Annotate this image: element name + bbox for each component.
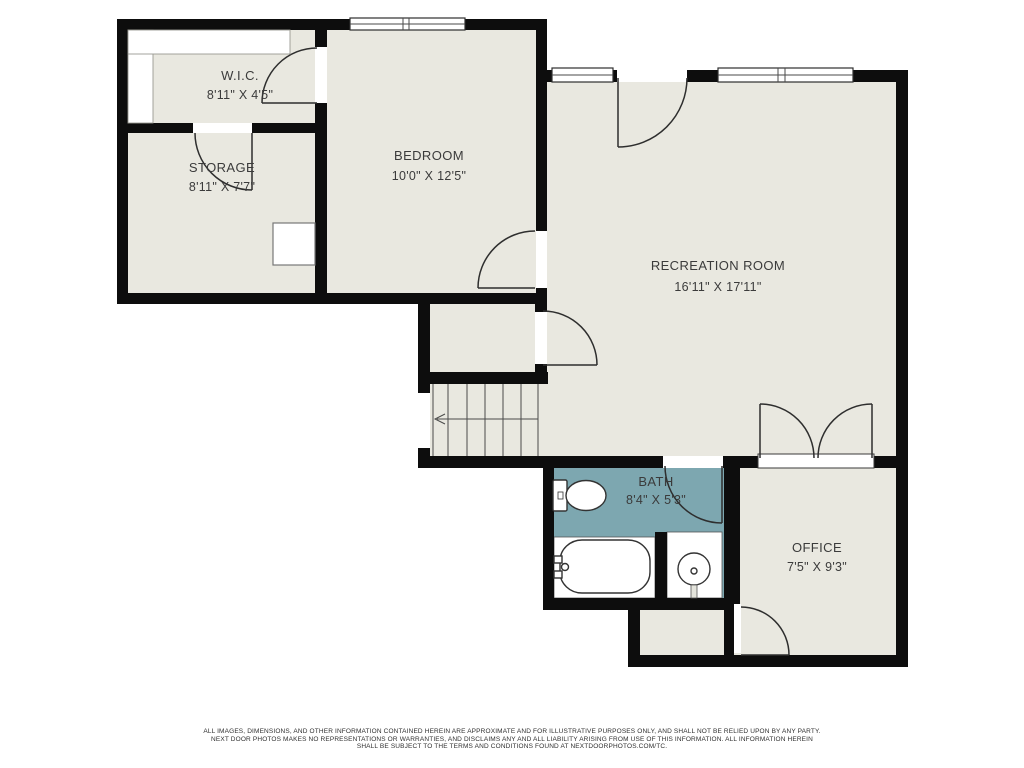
room-dims-bath: 8'4" X 5'3" bbox=[626, 493, 686, 507]
toilet bbox=[553, 480, 606, 511]
room-dims-storage: 8'11" X 7'7" bbox=[189, 180, 255, 194]
wall-hall-bottom bbox=[418, 372, 548, 384]
recreation-window-right bbox=[718, 68, 853, 82]
disclaimer: ALL IMAGES, DIMENSIONS, AND OTHER INFORM… bbox=[0, 728, 1024, 751]
room-label-office: OFFICE bbox=[792, 540, 842, 555]
wall-bath-stub bbox=[655, 532, 667, 598]
wall-bath-left bbox=[543, 456, 554, 610]
tub-faucet-knob bbox=[562, 564, 569, 571]
tub-faucet-plate bbox=[554, 556, 562, 563]
wall-bath-office bbox=[724, 456, 740, 608]
bedroom-window bbox=[350, 18, 465, 30]
room-label-wic: W.I.C. bbox=[221, 68, 259, 83]
wic-closet-top bbox=[128, 30, 290, 54]
storage-door-opening bbox=[193, 123, 252, 133]
bathtub bbox=[554, 540, 650, 593]
office-door-opening bbox=[734, 604, 741, 653]
floor-plan-drawing: W.I.C. 8'11" X 4'5" STORAGE 8'11" X 7'7"… bbox=[0, 0, 1024, 768]
disclaimer-line-1: ALL IMAGES, DIMENSIONS, AND OTHER INFORM… bbox=[0, 728, 1024, 736]
disclaimer-line-3: SHALL BE SUBJECT TO THE TERMS AND CONDIT… bbox=[0, 743, 1024, 751]
wall-bath-bottom bbox=[543, 598, 740, 610]
sink-pedestal bbox=[691, 585, 697, 598]
recreation-window-left bbox=[552, 68, 613, 82]
toilet-flush-button bbox=[558, 492, 563, 499]
room-dims-office: 7'5" X 9'3" bbox=[787, 560, 847, 574]
floors bbox=[122, 24, 902, 660]
tub-basin bbox=[560, 540, 650, 593]
wic-door-opening bbox=[315, 47, 327, 103]
bedroom-door-opening bbox=[536, 231, 547, 288]
recreation-door-opening bbox=[617, 70, 687, 82]
storage-utility-box bbox=[273, 223, 315, 265]
wall-bottomroom-office bbox=[724, 598, 734, 658]
wall-stair-left-stub bbox=[418, 448, 430, 460]
room-dims-bedroom: 10'0" X 12'5" bbox=[392, 169, 467, 183]
room-label-bath: BATH bbox=[638, 474, 673, 489]
tub-faucet-plate bbox=[554, 571, 562, 578]
wall-left bbox=[117, 19, 128, 304]
wall-top bbox=[117, 19, 547, 30]
hall-door-opening bbox=[535, 312, 547, 364]
french-door-threshold bbox=[758, 454, 874, 468]
disclaimer-line-2: NEXT DOOR PHOTOS MAKES NO REPRESENTATION… bbox=[0, 736, 1024, 744]
room-dims-recreation: 16'11" X 17'11" bbox=[674, 280, 761, 294]
room-label-bedroom: BEDROOM bbox=[394, 148, 464, 163]
wall-hall-right-upper bbox=[535, 293, 547, 312]
toilet-bowl bbox=[566, 481, 606, 511]
room-label-recreation: RECREATION ROOM bbox=[651, 258, 785, 273]
wall-bottom bbox=[628, 655, 908, 667]
room-dims-wic: 8'11" X 4'5" bbox=[207, 88, 273, 102]
room-label-storage: STORAGE bbox=[189, 160, 255, 175]
bath-door-opening bbox=[663, 456, 723, 468]
sink-drain bbox=[691, 568, 697, 574]
wall-right bbox=[896, 70, 908, 667]
wall-block-bottom bbox=[117, 293, 547, 304]
floor-plan-page: W.I.C. 8'11" X 4'5" STORAGE 8'11" X 7'7"… bbox=[0, 0, 1024, 768]
